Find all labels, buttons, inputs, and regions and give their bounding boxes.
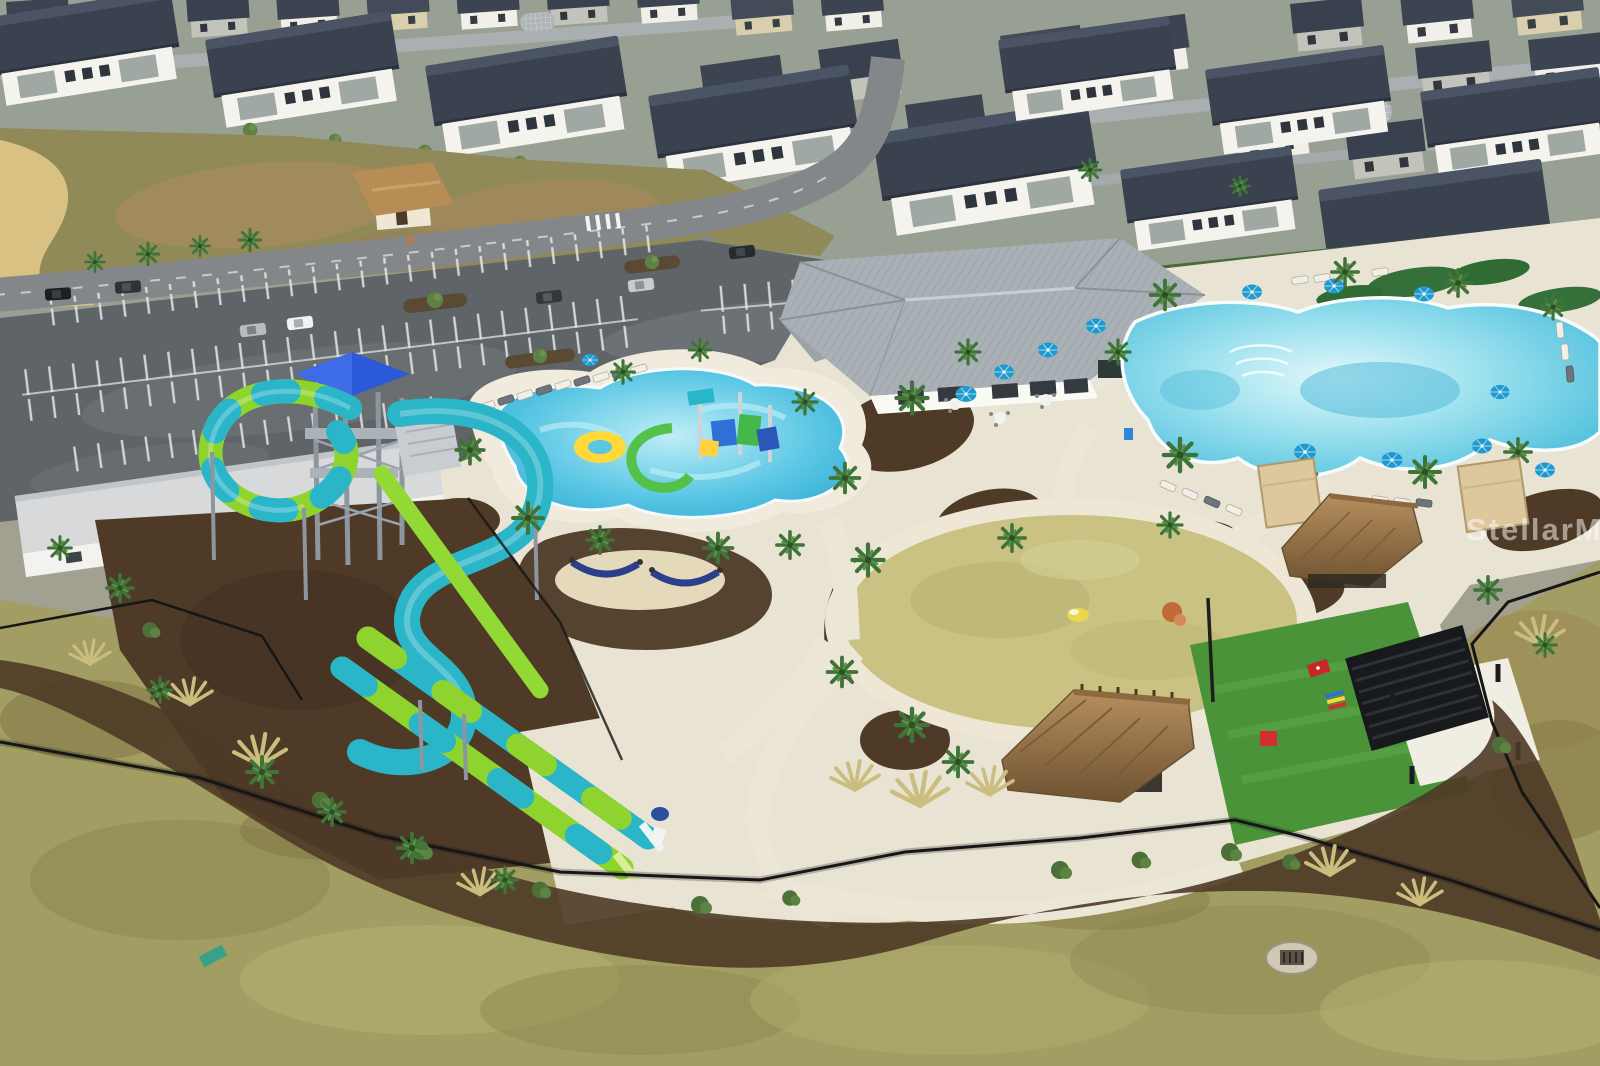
traffic-cone: [407, 237, 413, 243]
dumpster-enclosure: [1098, 360, 1124, 378]
storm-drain: [1266, 942, 1318, 974]
recycle-bin: [1124, 428, 1133, 440]
hammock-grove: [555, 550, 725, 610]
cornhole-board: [1260, 731, 1277, 746]
watermark: StellarMLS: [1466, 512, 1600, 547]
aerial-photo: StellarMLS: [0, 0, 1600, 1066]
